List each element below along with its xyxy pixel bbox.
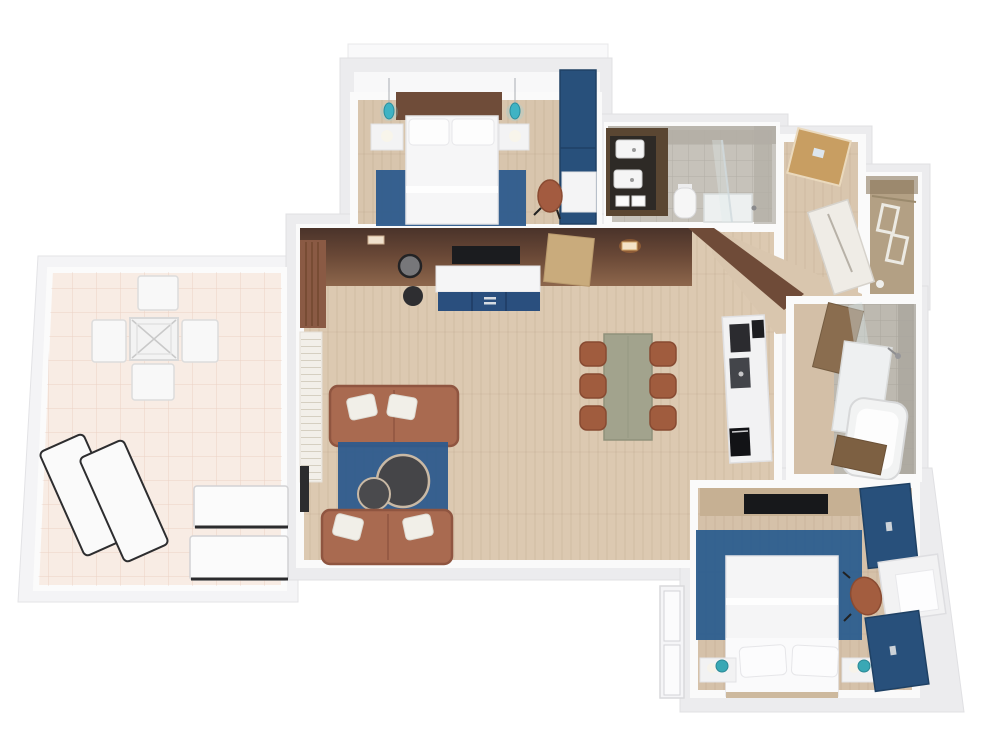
- dining-chair-2: [580, 374, 606, 398]
- table-lamp-left: [381, 130, 393, 142]
- bedroom1-desk-chair: [538, 180, 562, 212]
- bathroom1-towel-2: [632, 196, 645, 206]
- bedroom2-lamp-left-teal: [716, 660, 728, 672]
- bedroom2-lamp-right-white: [849, 663, 859, 673]
- kitchen-faucet: [739, 372, 744, 377]
- terrace-bench-1: [194, 486, 288, 528]
- floor-plan-stage: [0, 0, 1000, 750]
- bedroom1-desk: [562, 172, 596, 212]
- media-console-handle-2: [484, 302, 496, 305]
- table-lamp-right: [509, 130, 521, 142]
- dining-chair-6: [650, 406, 676, 430]
- tv-living: [452, 246, 520, 264]
- bedroom1-pillow-2: [452, 119, 494, 145]
- bedroom2-window-pane-2: [664, 645, 680, 695]
- sliding-door-panel: [544, 234, 595, 287]
- wall-radiator: [300, 466, 309, 512]
- dining-chair-3: [580, 406, 606, 430]
- floor-plan-shapes: [18, 44, 964, 712]
- bathroom1-shower-head: [752, 206, 757, 211]
- terrace-bench-2: [190, 536, 288, 580]
- closet-shadow: [866, 176, 918, 194]
- bedroom2-tv: [744, 494, 828, 514]
- curtain-sheer-folds: [301, 333, 321, 481]
- media-console-top: [436, 266, 540, 292]
- bathroom2-shower-head: [895, 353, 901, 359]
- bedroom2-wardrobe-1-knob: [886, 522, 893, 532]
- bedroom2-desk-inner: [895, 570, 938, 615]
- bathroom1-tap-2: [630, 178, 634, 182]
- bedroom2-pillow-2: [791, 645, 839, 677]
- dining-chair-1: [580, 342, 606, 366]
- bathroom1-towel-1: [616, 196, 629, 206]
- floor-lamp-base: [403, 286, 423, 306]
- floor-plan-3d-render: [0, 0, 1000, 750]
- media-console-base: [438, 292, 540, 311]
- bedroom2-bed-fold: [726, 598, 838, 605]
- bedroom1-bed-fold: [406, 186, 498, 193]
- dining-chair-5: [650, 374, 676, 398]
- bathroom1-sink-2: [614, 170, 642, 188]
- bathroom1-toilet: [674, 188, 696, 218]
- light-switch-2: [622, 242, 637, 250]
- bedroom2-wardrobe-2: [865, 611, 929, 692]
- terrace-chair-right: [182, 320, 218, 362]
- coffee-table-small: [358, 478, 390, 510]
- light-switch-1: [368, 236, 384, 244]
- bedroom1-pillow-1: [409, 119, 449, 145]
- sofa-top-pillow-2: [386, 394, 417, 421]
- dining-chair-4: [650, 342, 676, 366]
- bedroom2-wardrobe-2-knob: [889, 646, 896, 656]
- terrace-chair-bottom: [132, 364, 174, 400]
- bedroom2-lamp-right-teal: [858, 660, 870, 672]
- pendant-lamp-right: [510, 103, 520, 119]
- bedroom2-headboard: [726, 692, 838, 698]
- kitchen-oven-handle: [732, 431, 748, 432]
- bedroom2-lamp-left-white: [707, 663, 717, 673]
- curtain-drape: [300, 240, 326, 328]
- terrace-chair-top: [138, 276, 178, 310]
- media-console-handle-1: [484, 297, 496, 300]
- floor-lamp-shade: [399, 255, 421, 277]
- kitchen-upper-cabinet: [752, 320, 765, 339]
- closet-item: [876, 280, 884, 288]
- bathroom1-tap-1: [632, 148, 636, 152]
- bedroom2-pillow-1: [739, 644, 787, 677]
- terrace-chair-left: [92, 320, 126, 362]
- bedroom2-window-pane-1: [664, 591, 680, 641]
- bathroom1-sink-1: [616, 140, 644, 158]
- kitchen-cooktop: [729, 323, 750, 352]
- bathroom1-wall-tile-right: [754, 126, 776, 226]
- pendant-lamp-left: [384, 103, 394, 119]
